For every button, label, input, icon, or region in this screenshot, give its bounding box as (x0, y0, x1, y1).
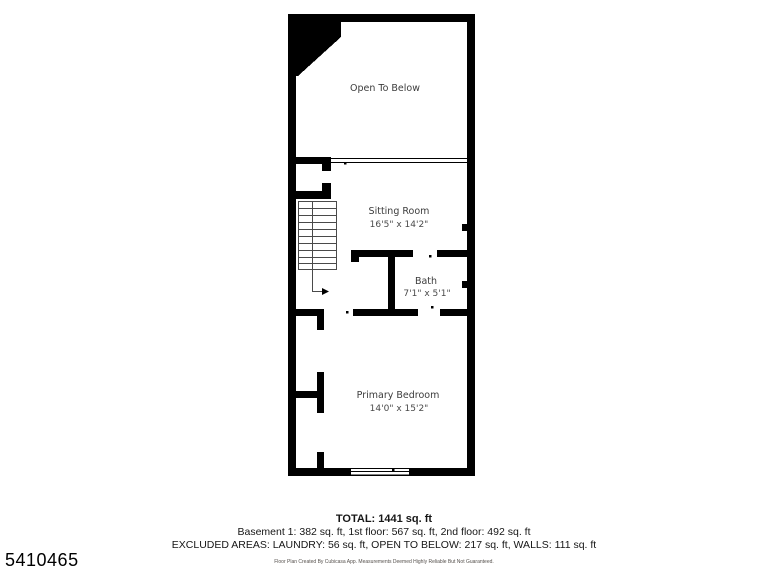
angled-corner-wall (296, 21, 341, 76)
area-summary: TOTAL: 1441 sq. ft Basement 1: 382 sq. f… (0, 513, 768, 565)
door-marker (392, 469, 395, 472)
summary-disclaimer: Floor Plan Created By Cubicasa App. Meas… (0, 559, 768, 565)
bath-wall-cap (351, 250, 359, 262)
outer-wall-top (288, 14, 475, 22)
room-dimensions-sitting-room: 16'5" x 14'2" (370, 220, 429, 230)
railing (331, 159, 467, 163)
room-label-primary-bedroom: Primary Bedroom (357, 390, 440, 401)
stair-direction-arrow-icon (322, 288, 329, 295)
mid-wall-center (353, 309, 418, 316)
room-dimensions-bath: 7'1" x 5'1" (403, 289, 450, 299)
stair-run-line (313, 269, 323, 292)
floor-plan-drawing: Open To Below Sitting Room 16'5" x 14'2"… (0, 0, 768, 576)
right-wall-nub-upper (462, 224, 467, 231)
landing-wall-lower (296, 191, 322, 199)
right-wall-nub-lower (462, 281, 467, 288)
room-label-sitting-room: Sitting Room (369, 206, 430, 217)
mid-wall-left (288, 309, 324, 316)
window (350, 469, 410, 476)
room-label-open-to-below: Open To Below (350, 83, 420, 94)
closet-stub-upper (317, 316, 324, 330)
room-label-bath: Bath (415, 276, 437, 287)
bath-closet-divider-wall (388, 250, 395, 316)
outer-wall-left (288, 14, 296, 476)
stair-outline (299, 202, 337, 270)
bath-wall-top-left (351, 250, 413, 257)
door-marker (429, 255, 432, 258)
closet-wall-horizontal (296, 391, 322, 398)
door-marker (346, 311, 349, 314)
landing-wall-upper-cap (322, 157, 331, 171)
summary-excluded-areas: EXCLUDED AREAS: LAUNDRY: 56 sq. ft, OPEN… (0, 539, 768, 552)
bath-wall-top-right (437, 250, 467, 257)
room-dimensions-primary-bedroom: 14'0" x 15'2" (370, 404, 429, 414)
staircase (298, 201, 337, 292)
summary-total: TOTAL: 1441 sq. ft (0, 513, 768, 526)
summary-floor-breakdown: Basement 1: 382 sq. ft, 1st floor: 567 s… (0, 526, 768, 539)
listing-id: 5410465 (5, 550, 79, 571)
closet-stub-lower (317, 452, 324, 468)
outer-wall-right (467, 14, 475, 476)
door-marker (344, 162, 347, 165)
landing-wall-lower-cap (322, 183, 331, 199)
floor-plan-page: Open To Below Sitting Room 16'5" x 14'2"… (0, 0, 768, 576)
mid-wall-right (440, 309, 467, 316)
door-marker (431, 306, 434, 309)
